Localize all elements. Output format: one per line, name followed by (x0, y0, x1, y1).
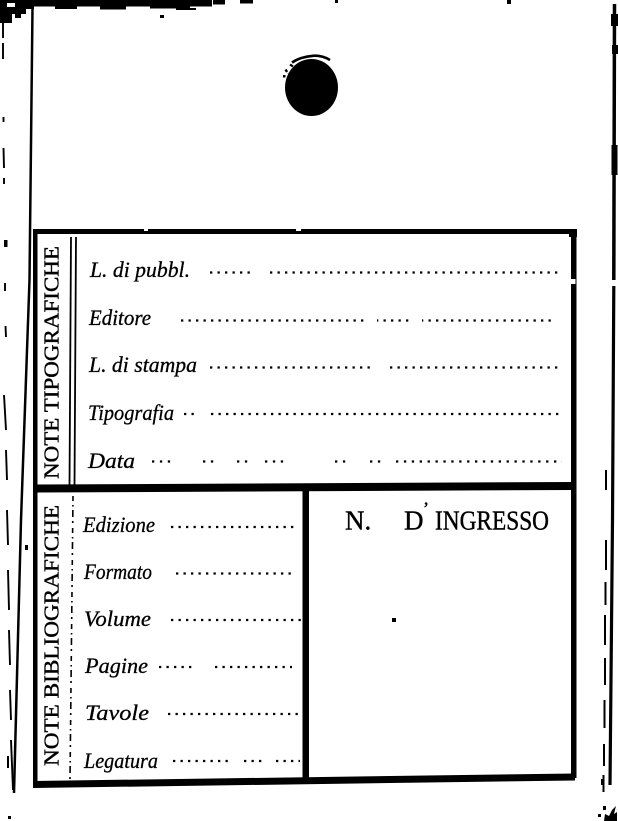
svg-text:L. di pubbl.: L. di pubbl. (89, 257, 190, 282)
svg-text:INGRESSO: INGRESSO (435, 506, 549, 536)
svg-text:Edizione: Edizione (82, 512, 155, 537)
svg-text:NOTE BIBLIOGRAFICHE: NOTE BIBLIOGRAFICHE (40, 505, 64, 766)
svg-text:’: ’ (423, 499, 429, 519)
svg-text:Editore: Editore (88, 305, 151, 330)
svg-text:Tavole: Tavole (85, 700, 149, 725)
svg-text:D: D (404, 506, 424, 536)
svg-text:Data: Data (87, 448, 135, 473)
svg-text:Legatura: Legatura (83, 748, 158, 773)
svg-text:Volume: Volume (84, 606, 151, 631)
svg-text:L. di stampa: L. di stampa (88, 352, 197, 377)
svg-text:NOTE TIPOGRAFICHE: NOTE TIPOGRAFICHE (40, 246, 64, 479)
svg-text:Tipografia: Tipografia (88, 400, 174, 425)
svg-text:Pagine: Pagine (84, 653, 148, 678)
svg-text:Formato: Formato (83, 559, 152, 584)
svg-text:N.: N. (345, 506, 371, 536)
